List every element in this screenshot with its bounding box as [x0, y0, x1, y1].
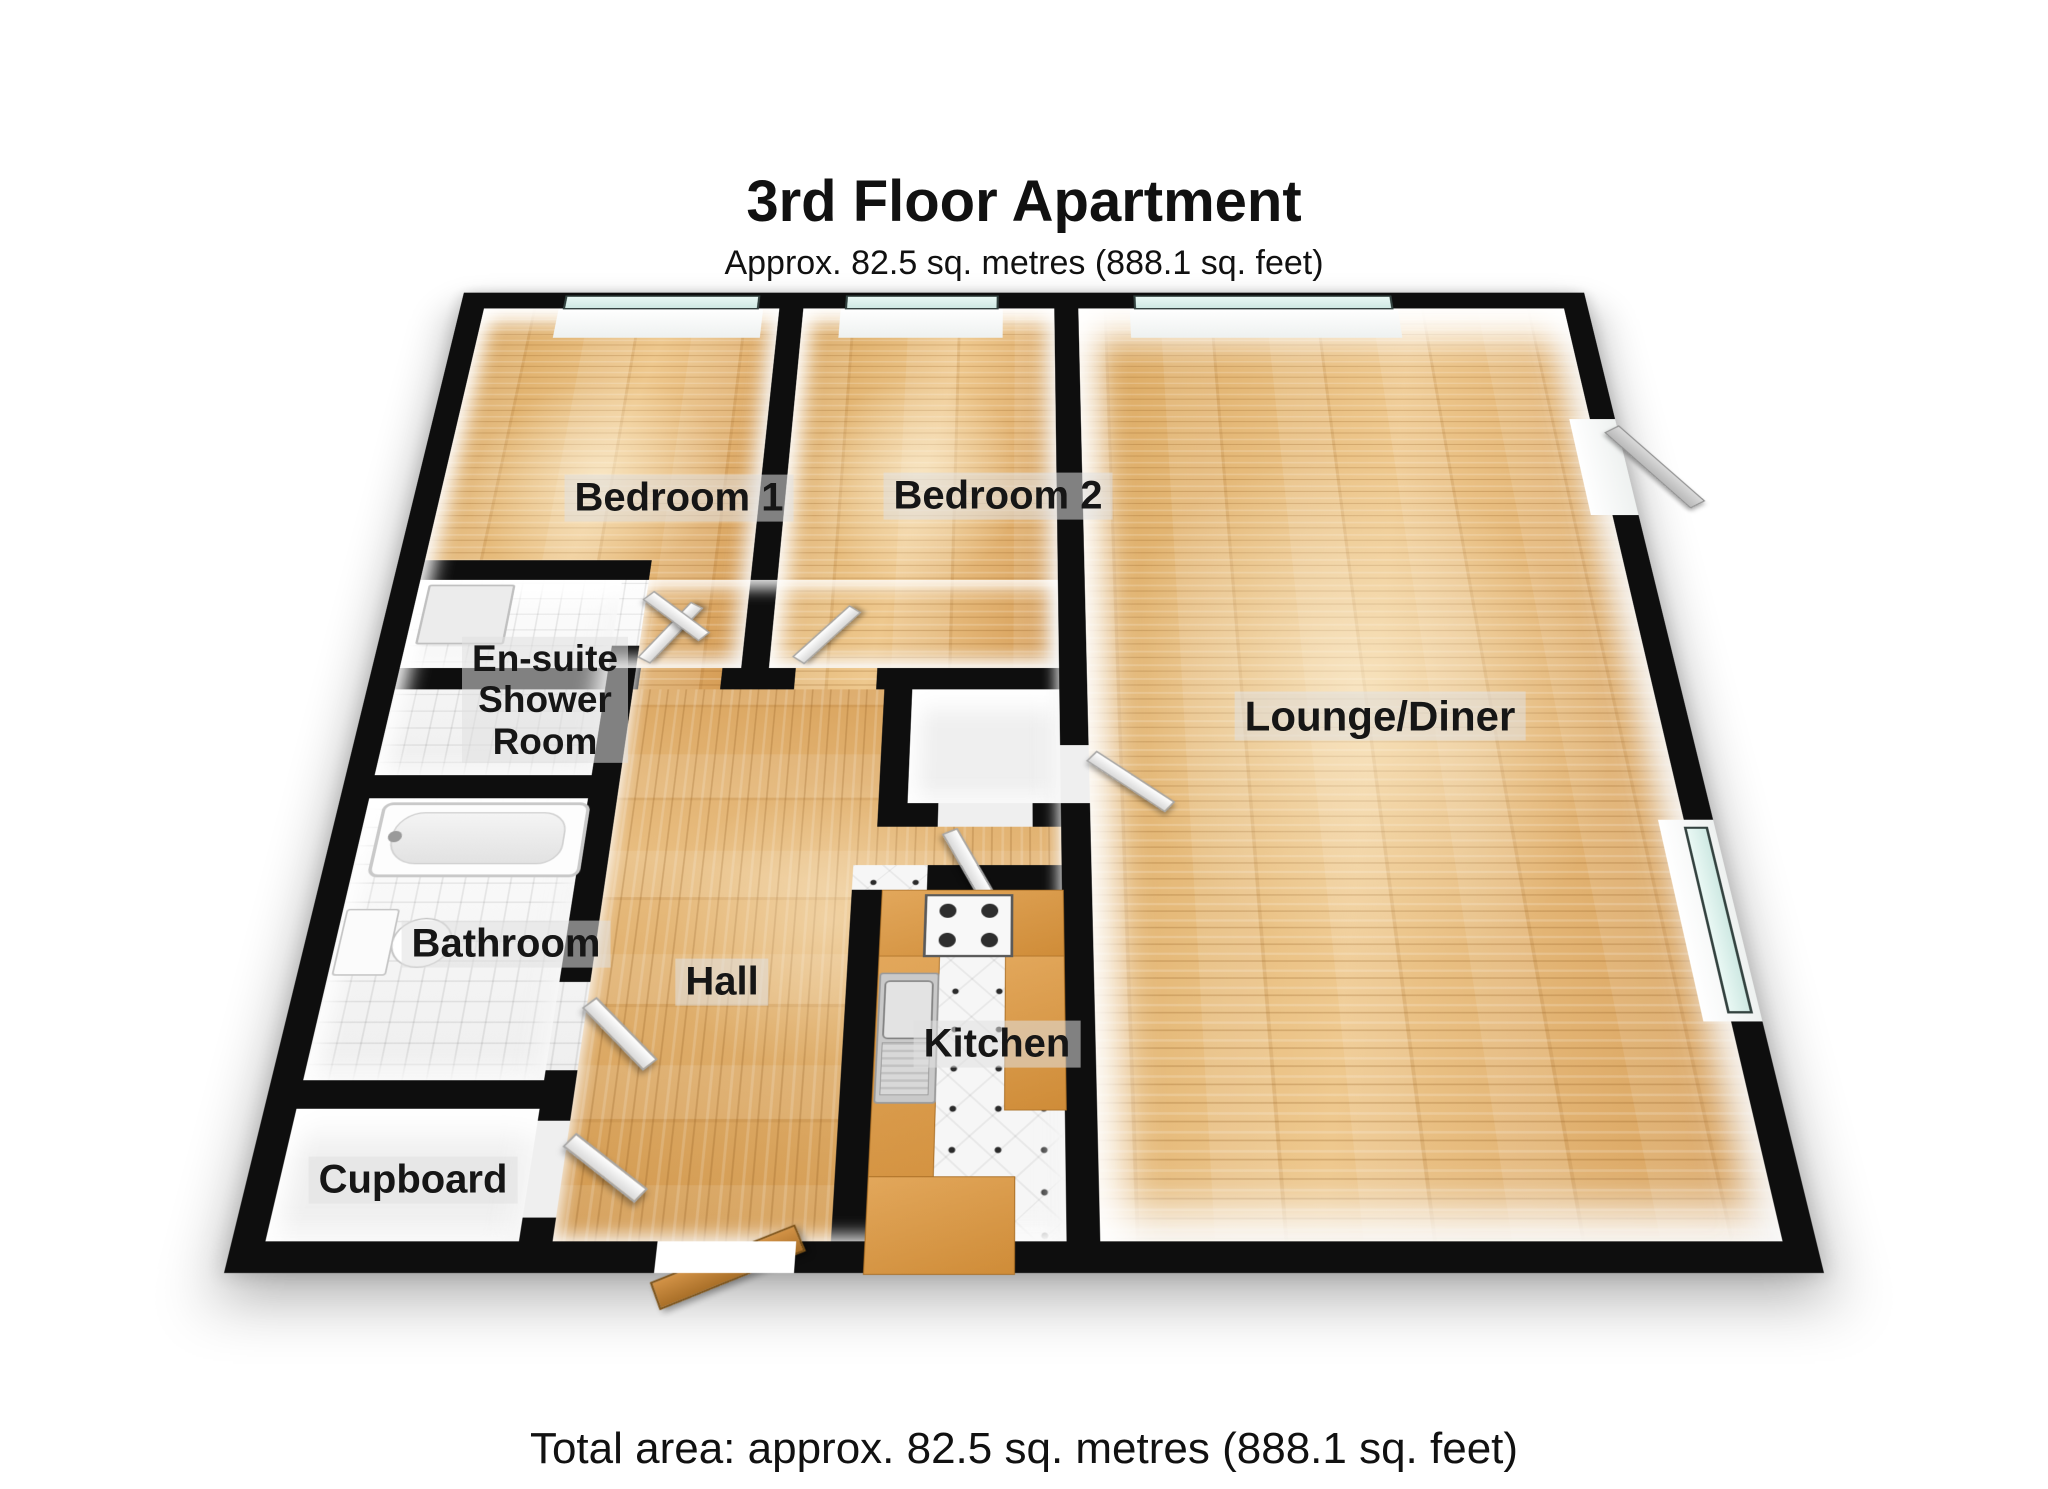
bedroom2-window-pane	[845, 295, 999, 309]
label-cupboard: Cupboard	[309, 1157, 518, 1204]
label-hall: Hall	[675, 959, 768, 1006]
label-lounge: Lounge/Diner	[1235, 691, 1526, 740]
entrance-gap	[654, 1241, 796, 1273]
wall-bedrooms-south	[720, 668, 796, 689]
wall-ensuite-north	[420, 560, 651, 580]
bedroom1-window-recess	[553, 308, 763, 337]
floorplan-page: 3rd Floor Apartment Approx. 82.5 sq. met…	[0, 0, 2048, 1489]
bedroom2-window-recess	[838, 308, 1002, 337]
wall-closet-south	[1033, 803, 1091, 827]
wall-top	[763, 293, 842, 309]
wall-cupboard-east	[538, 1109, 572, 1121]
wall-kitchen-north	[927, 865, 1092, 890]
bathtub-basin	[385, 812, 568, 864]
lounge-floor	[1054, 308, 1824, 1273]
wall-cupboard-east	[519, 1218, 556, 1242]
lounge-window-pane	[1133, 295, 1393, 309]
lounge-window-recess	[1130, 308, 1403, 337]
label-bedroom2: Bedroom 2	[884, 473, 1113, 520]
total-area-text: Total area: approx. 82.5 sq. metres (888…	[0, 1424, 2048, 1474]
floor-plan-3d	[224, 293, 1824, 1273]
wall-top	[1003, 293, 1130, 309]
kitchen-counter-bottom	[863, 1176, 1015, 1275]
wall-bottom	[224, 1241, 658, 1273]
wall-cupboard-north	[296, 1080, 576, 1109]
hob	[923, 894, 1014, 957]
label-bathroom: Bathroom	[402, 921, 611, 968]
label-bedroom1: Bedroom 1	[565, 475, 794, 522]
wall-bedrooms-south	[876, 668, 1087, 689]
label-kitchen: Kitchen	[914, 1021, 1081, 1068]
bedroom1-window-pane	[563, 295, 761, 309]
wall-closet-south	[877, 803, 938, 827]
shower-tray	[415, 585, 516, 645]
wall-bathroom-north	[369, 775, 620, 798]
wall-top	[1395, 293, 1588, 309]
label-ensuite: En-suite Shower Room	[462, 637, 628, 763]
